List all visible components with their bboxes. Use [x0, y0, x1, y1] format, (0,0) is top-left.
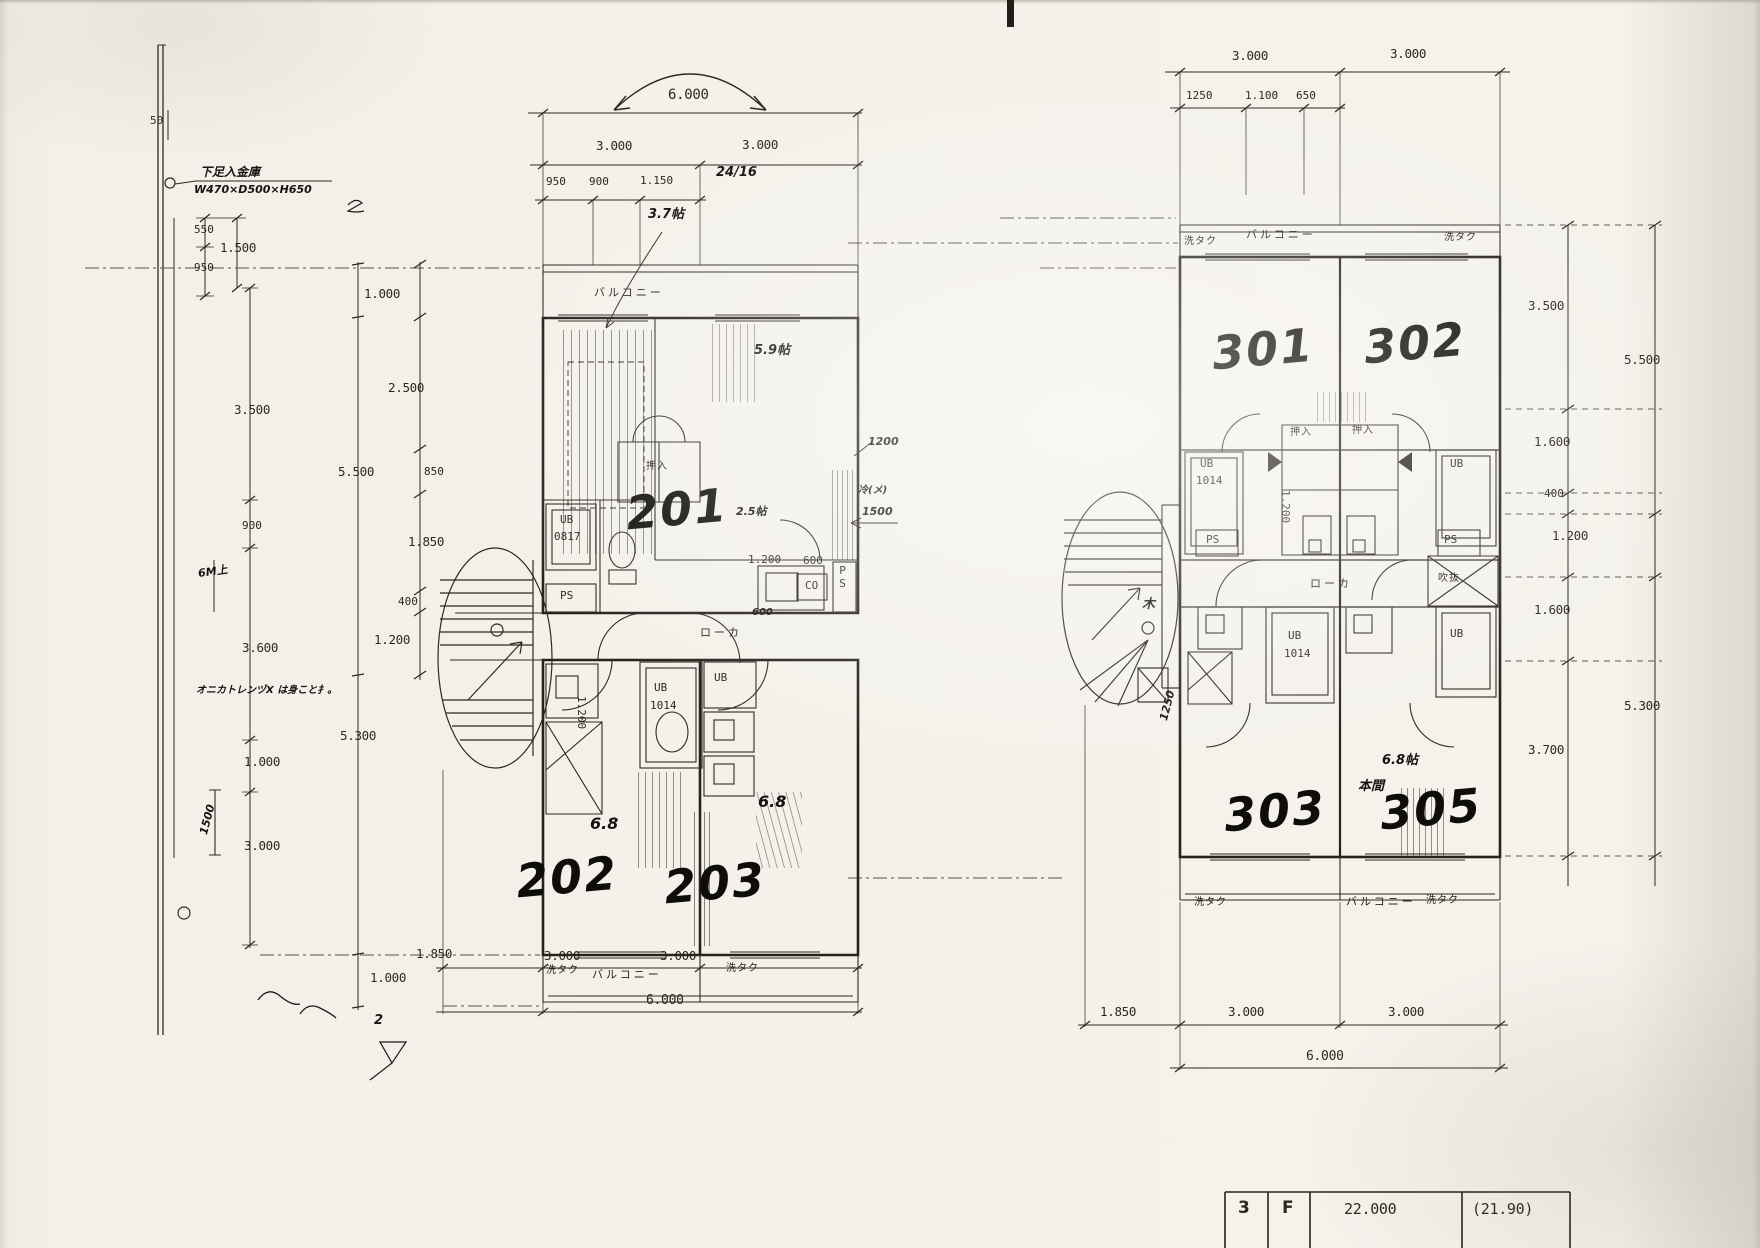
plan2f-dim-1850-bottom: 1.850 — [416, 948, 452, 961]
plan3f-dim-3000-bottom-b: 3.000 — [1388, 1006, 1424, 1019]
plan2f-hand-600: 600 — [752, 608, 773, 618]
plan3f-dim-1100: 1.100 — [1245, 90, 1278, 101]
plan3f-ps-left-label: PS — [1206, 534, 1219, 545]
section-dim-950: 950 — [194, 262, 214, 273]
plan2f-balcony-bottom-label: バルコニー — [592, 969, 662, 980]
plan2f-dim-600: 600 — [803, 555, 823, 566]
section-dim-3500: 3.500 — [234, 404, 270, 417]
plan2f-oshiire-label: 押入 — [646, 462, 668, 472]
plan3f-dim-3500-right: 3.500 — [1528, 300, 1564, 313]
plan3f-sentaku-top-left: 洗タク — [1184, 237, 1217, 247]
plan2f-hand-1200: 1200 — [868, 436, 899, 447]
plan3f-hand-68jo: 6.8帖 — [1382, 754, 1418, 767]
fold-mark — [1007, 0, 1014, 27]
section-dim-900: 900 — [242, 520, 262, 531]
mid-dim-850: 850 — [424, 466, 444, 477]
titleblock-area: 22.000 — [1344, 1202, 1396, 1217]
mid-dim-1850: 1.850 — [408, 536, 444, 549]
section-dim-3000: 3.000 — [244, 840, 280, 853]
section-hand-memo: オニカトレンヅX は身こと扌。 — [196, 686, 337, 696]
plan2f-unit-202: 202 — [514, 850, 620, 905]
plan2f-dim-6000: 6.000 — [668, 88, 709, 102]
hatch-3f-closet — [1312, 392, 1368, 422]
titleblock-floor-letter: F — [1282, 1200, 1294, 1217]
section-dim-1000: 1.000 — [244, 756, 280, 769]
plan3f-dim-5300-right: 5.300 — [1624, 700, 1660, 713]
section-note-title: 下足入金庫 — [200, 166, 260, 178]
plan2f-ub-1014-label: UB — [654, 682, 667, 693]
plan3f-unit-302: 302 — [1362, 316, 1468, 371]
plan3f-dim-1850-bottom: 1.850 — [1100, 1006, 1136, 1019]
plan2f-ps-left-label: PS — [560, 590, 573, 601]
plan3f-ub-303-label: UB — [1288, 630, 1301, 641]
stairs-3f — [1062, 492, 1180, 706]
hatch-2f-shaft — [828, 470, 856, 560]
hatch-2f-room-right — [706, 324, 760, 402]
plan3f-dim-6000-bottom: 6.000 — [1306, 1050, 1344, 1063]
stairs-2f — [438, 548, 552, 768]
plan3f-ps-right-label: PS — [1444, 534, 1457, 545]
mid-dim-5300: 5.300 — [340, 730, 376, 743]
plan3f-dim-3700-right: 3.700 — [1528, 744, 1564, 757]
titleblock-floor-number: 3 — [1238, 1200, 1250, 1217]
plan3f-dim-1600-right-b: 1.600 — [1534, 604, 1570, 617]
plan2f-hand-68-left: 6.8 — [590, 816, 618, 832]
plan2f-sentaku-right: 洗タク — [726, 964, 759, 974]
plan3f-dim-5500-right: 5.500 — [1624, 354, 1660, 367]
plan3f-dim-3000-bottom-a: 3.000 — [1228, 1006, 1264, 1019]
plan3f-unit-303: 303 — [1222, 784, 1328, 839]
plan3f-ub-301-label: UB — [1200, 458, 1213, 469]
plan3f-dim-650: 650 — [1296, 90, 1316, 101]
plan2f-ub-1014-size: 1014 — [650, 700, 677, 711]
plan2f-unit-201: 201 — [624, 482, 730, 537]
plan2f-dim-1200-vert: 1.200 — [576, 696, 587, 729]
plan2f-co-label: CO — [805, 580, 818, 591]
plan3f-unit-301: 301 — [1210, 322, 1316, 377]
plan2f-dim-3000-bottom-a: 3.000 — [544, 950, 580, 963]
plan3f-dim-1600-right-a: 1.600 — [1534, 436, 1570, 449]
section-dim-3600: 3.600 — [242, 642, 278, 655]
plan3f-fukinuke-label: 吹抜 — [1438, 574, 1460, 584]
plan3f-ub-302-label: UB — [1450, 458, 1463, 469]
mid-hand-2-bottom: 2 — [374, 1014, 383, 1027]
plan2f-hand-59jo: 5.9帖 — [754, 344, 790, 357]
scanned-floor-plan-sheet: 50 下足入金庫 W470×D500×H650 550 1.500 950 3.… — [0, 0, 1760, 1248]
details-2f — [450, 265, 858, 1002]
plan2f-ub-203-label: UB — [714, 672, 727, 683]
plan2f-balcony-top-label: バルコニー — [594, 287, 664, 298]
plan2f-ub-0817-label: UB — [560, 514, 573, 525]
plan2f-sentaku-left: 洗タク — [546, 966, 579, 976]
plan2f-hand-25jo: 2.5帖 — [736, 506, 767, 517]
plan2f-ub-0817-size: 0817 — [554, 531, 581, 542]
mid-dim-2500: 2.500 — [388, 382, 424, 395]
mid-dim-1000-top: 1.000 — [364, 288, 400, 301]
plan3f-ub-305-label: UB — [1450, 628, 1463, 639]
section-dim-550: 550 — [194, 224, 214, 235]
section-dim-1500: 1.500 — [220, 242, 256, 255]
plan2f-dim-3000-b: 3.000 — [742, 139, 778, 152]
plan3f-dim-1250: 1250 — [1186, 90, 1213, 101]
hatch-2f-genkan-a — [632, 772, 686, 868]
mid-dim-5500: 5.500 — [338, 466, 374, 479]
plan3f-roka-label: ローカ — [1310, 578, 1352, 589]
plan3f-hand-ki: 木 — [1142, 598, 1155, 611]
plan2f-dim-1200-kitchen: 1.200 — [748, 554, 781, 565]
plan2f-roka-label: ローカ — [700, 627, 742, 638]
plan2f-dim-950: 950 — [546, 176, 566, 187]
plan2f-dim-3000-bottom-b: 3.000 — [660, 950, 696, 963]
plan2f-hand-memo: 冷(メ) — [858, 486, 887, 496]
plan3f-dim-3000-top-a: 3.000 — [1232, 50, 1268, 63]
plan3f-dim-1200-vert: 1.200 — [1280, 490, 1291, 523]
plan2f-hand-37jo: 3.7帖 — [648, 208, 684, 221]
plan3f-sentaku-top-right: 洗タク — [1444, 233, 1477, 243]
plan3f-ub-303-size: 1014 — [1284, 648, 1311, 659]
plan3f-balcony-top-label: バルコニー — [1246, 229, 1316, 240]
plan2f-unit-203: 203 — [662, 856, 768, 911]
mid-dim-1000-bottom: 1.000 — [370, 972, 406, 985]
plan2f-dim-1150: 1.150 — [640, 175, 673, 186]
plan3f-dim-400-right: 400 — [1544, 488, 1564, 499]
plan3f-oshiire-b-label: 押入 — [1352, 426, 1374, 436]
mid-dim-400: 400 — [398, 596, 418, 607]
plan3f-unit-305: 305 — [1378, 782, 1484, 837]
section-dim-50: 50 — [150, 115, 163, 126]
plan2f-dim-6000-bottom: 6.000 — [646, 994, 684, 1007]
plan3f-sentaku-bottom-left: 洗タク — [1194, 898, 1227, 908]
plan2f-hand-1500: 1500 — [862, 506, 893, 517]
plan2f-dim-900: 900 — [589, 176, 609, 187]
plan3f-dim-3000-top-b: 3.000 — [1390, 48, 1426, 61]
plan2f-dim-3000-a: 3.000 — [596, 140, 632, 153]
mid-dim-1200: 1.200 — [374, 634, 410, 647]
plan2f-hand-2416: 24/16 — [716, 166, 757, 179]
plan3f-oshiire-a-label: 押入 — [1290, 428, 1312, 438]
plan2f-ps-right-label: PS — [837, 564, 848, 590]
plan2f-hand-68-right: 6.8 — [758, 794, 786, 810]
plan3f-sentaku-bottom-right: 洗タク — [1426, 896, 1459, 906]
plan3f-balcony-bottom-label: バルコニー — [1346, 896, 1416, 907]
section-note-size: W470×D500×H650 — [194, 184, 312, 195]
dims-3f — [1078, 68, 1662, 1072]
titleblock-area-paren: (21.90) — [1472, 1202, 1533, 1217]
plan3f-ub-301-size: 1014 — [1196, 475, 1223, 486]
plan3f-dim-1200-right: 1.200 — [1552, 530, 1588, 543]
